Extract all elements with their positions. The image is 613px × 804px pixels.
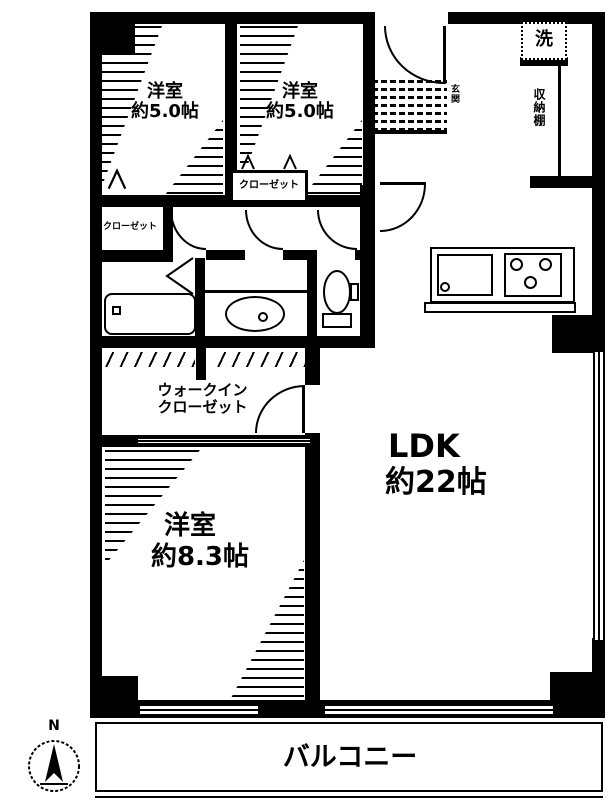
window [140,704,258,716]
corner-pillar [552,315,605,353]
washbasin [225,296,285,332]
wall [530,176,592,188]
balcony-edge [95,796,603,798]
door-leaf [302,385,305,433]
shading-hatch [165,120,223,195]
wall [307,258,317,338]
closet-a-label: クローゼット [94,222,166,232]
folding-door [163,256,195,296]
stove-burner [539,258,552,271]
hanger-mark [106,168,128,190]
door-arc [380,184,426,232]
stove-burner [510,258,523,271]
wall [90,250,173,262]
wall [355,250,367,260]
compass-north-label: N [44,718,64,734]
door-leaf [443,26,446,84]
storage-shelf-line [558,64,561,178]
shading-hatch [302,120,362,198]
bedroom-c-name: 洋室 [120,512,260,542]
storage-label: 収納棚 [531,88,548,158]
counter-front [424,302,576,313]
door-leaf [380,182,426,185]
ldk-size: 約22帖 [385,466,545,501]
wall [360,185,375,348]
door-arc [384,26,444,84]
balcony-label: バルコニー [240,742,460,773]
wall [592,24,605,352]
sliding-door [138,437,310,445]
entrance-tile [372,80,447,134]
hanger-rod-marks [100,352,195,367]
walk-in-closet-label: ウォークイン クローゼット [130,382,275,417]
hanger-rod-marks [212,352,305,367]
laundry-label: 洗 [521,30,567,51]
closet-b-label: クローゼット [231,180,307,192]
wall [90,336,375,348]
entrance-label: 玄関 [448,84,461,124]
wall [195,258,205,338]
washbasin-faucet [258,312,268,322]
bedroom-a-name: 洋室 [105,82,225,103]
stove-burner [524,276,537,289]
window [593,352,605,640]
wall [305,433,320,700]
window [325,704,553,716]
ldk-name: LDK [388,428,508,465]
bedroom-a-size: 約5.0帖 [105,102,225,123]
hanger-mark [282,154,298,170]
wall [305,348,320,385]
vanity-counter [205,290,307,293]
compass-icon [24,734,84,798]
floorplan: 玄関 洗 収納棚 洋室 約5.0帖 洋室 約5.0帖 クローゼット クローゼット… [0,0,613,804]
sink-faucet [440,282,450,292]
wall [196,348,206,380]
bathtub-drain [112,306,121,315]
bedroom-b-name: 洋室 [240,82,360,103]
corner-pillar [550,672,605,718]
toilet [318,266,360,334]
bedroom-b-size: 約5.0帖 [240,102,360,123]
door-arc [170,210,206,250]
shading-hatch [230,560,304,700]
bedroom-c-size: 約8.3帖 [120,543,280,573]
corner-pillar [90,676,138,718]
door-arc [245,210,283,250]
hanger-mark [240,154,256,170]
door-arc [317,210,357,250]
wall [206,250,245,260]
